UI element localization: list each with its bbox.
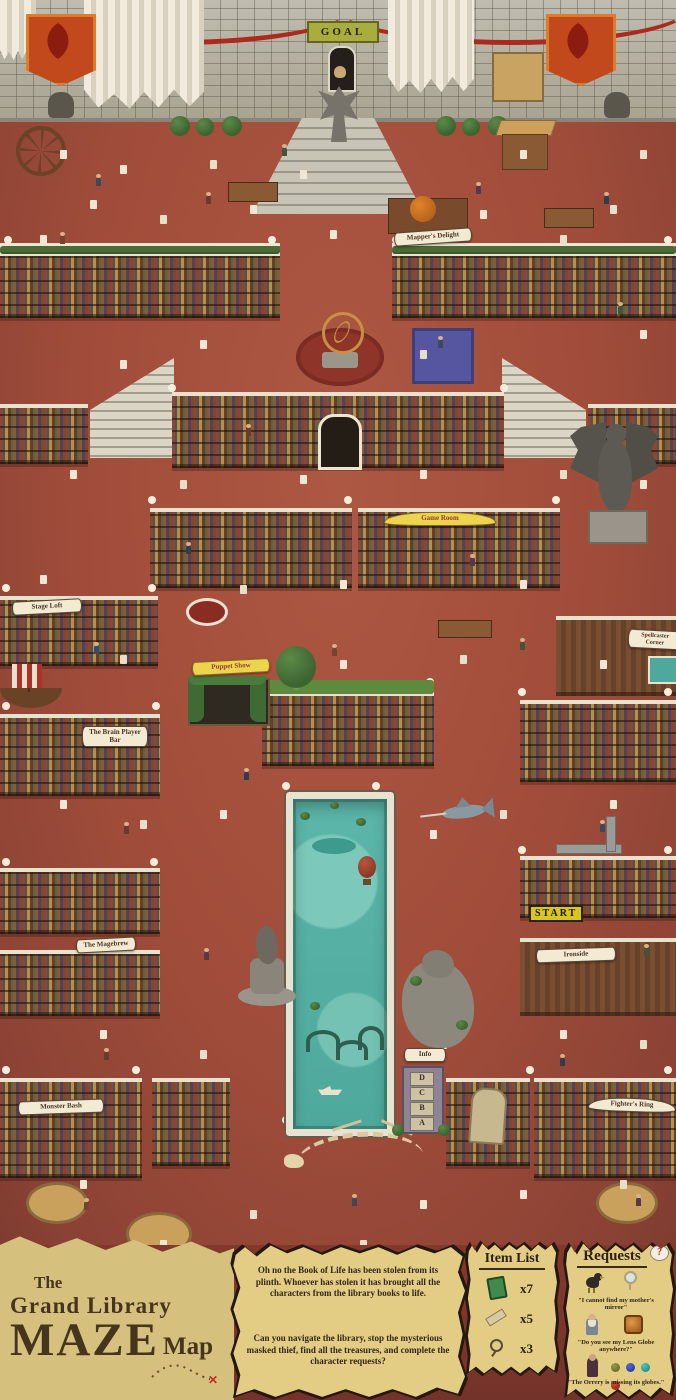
topiary bbox=[462, 118, 480, 136]
bookshelf-row bbox=[0, 950, 160, 1016]
map-area: GOAL Mapper's Delight bbox=[0, 0, 676, 1245]
requests-title: Requests bbox=[577, 1248, 647, 1268]
topiary bbox=[392, 1124, 404, 1136]
magnifying-glass-icon bbox=[490, 1339, 504, 1355]
stairs-left bbox=[90, 358, 174, 458]
story-paragraph-1: Oh no the Book of Life has been stolen f… bbox=[246, 1265, 450, 1300]
garden-tree bbox=[276, 646, 316, 688]
phoenix-emblem bbox=[47, 23, 68, 59]
bookshelf-row bbox=[392, 252, 676, 318]
requests-header: Requests bbox=[562, 1247, 662, 1268]
market-stall bbox=[502, 134, 548, 170]
lily-pad bbox=[310, 1002, 320, 1010]
reading-table bbox=[544, 208, 594, 228]
item-list-header: Item List bbox=[464, 1249, 560, 1270]
hand-mirror-icon bbox=[624, 1271, 636, 1289]
lily-pad bbox=[330, 802, 339, 809]
puppet-show-stage: Puppet Show bbox=[186, 660, 268, 722]
sarcophagus bbox=[468, 1087, 508, 1145]
green-book-icon bbox=[486, 1276, 508, 1301]
start-sign: START bbox=[529, 905, 583, 922]
bookshelf-row bbox=[0, 868, 160, 934]
garland bbox=[392, 246, 676, 252]
blue-rug bbox=[412, 328, 474, 384]
item-count: x3 bbox=[520, 1341, 533, 1357]
info-sign: Info bbox=[404, 1048, 446, 1062]
owl-icon bbox=[334, 66, 346, 78]
info-board-tile: D bbox=[410, 1072, 434, 1086]
teal-globe-icon bbox=[641, 1363, 650, 1372]
item-count: x7 bbox=[520, 1281, 533, 1297]
swordfish bbox=[419, 793, 498, 830]
topiary bbox=[222, 116, 242, 136]
request-quote: "Do you see my Lens Globe anywhere?" bbox=[566, 1339, 666, 1354]
topiary bbox=[436, 116, 456, 136]
sign-puppet-show: Puppet Show bbox=[192, 658, 271, 676]
reading-table bbox=[438, 620, 492, 638]
info-board-tile: A bbox=[410, 1117, 434, 1131]
reading-table bbox=[228, 182, 278, 202]
bookshelf-row bbox=[520, 700, 676, 782]
game-table bbox=[26, 1182, 88, 1224]
bookshelf-row bbox=[262, 692, 434, 766]
title-the: The bbox=[34, 1273, 225, 1293]
dotted-trail: ✕ bbox=[150, 1353, 220, 1387]
bookshelf-row bbox=[150, 508, 352, 588]
bookshelf-row bbox=[152, 1078, 230, 1166]
blue-globe-icon bbox=[626, 1363, 635, 1372]
game-table bbox=[596, 1182, 658, 1224]
sign-spellcaster-corner: Spellcaster Corner bbox=[628, 629, 676, 651]
goal-sign: GOAL bbox=[307, 21, 379, 43]
requests-card: Requests ? "I cannot find my mother's mi… bbox=[562, 1239, 676, 1400]
request-quote: "The Orrery is missing its globes." bbox=[566, 1379, 666, 1386]
garland bbox=[0, 246, 280, 252]
bookshelf-row bbox=[0, 252, 280, 318]
sign-brain-player-bar: The Brain Player Bar bbox=[82, 726, 148, 747]
question-bubble: ? bbox=[650, 1245, 669, 1261]
info-board-tile: B bbox=[410, 1102, 434, 1116]
olive-globe-icon bbox=[611, 1363, 620, 1372]
lens-globe-icon bbox=[624, 1315, 643, 1334]
map-title: The Grand Library MAZE Map bbox=[10, 1273, 225, 1361]
orrery-base bbox=[322, 352, 358, 368]
x-marks-spot-icon: ✕ bbox=[208, 1373, 218, 1387]
phoenix-emblem bbox=[567, 23, 588, 59]
eagle-statue-right bbox=[604, 92, 630, 118]
viking-ship bbox=[0, 662, 64, 712]
bookshelf-row bbox=[0, 404, 88, 464]
story-scroll: Oh no the Book of Life has been stolen f… bbox=[228, 1241, 468, 1400]
bookshelf-row bbox=[534, 1078, 676, 1178]
info-board-tile: C bbox=[410, 1087, 434, 1101]
wizard-character bbox=[584, 1313, 600, 1335]
gold-banner bbox=[492, 52, 544, 102]
arched-doorway bbox=[318, 414, 362, 470]
story-paragraph-2: Can you navigate the library, stop the m… bbox=[246, 1333, 450, 1368]
topiary bbox=[170, 116, 190, 136]
hot-air-balloon bbox=[358, 856, 376, 885]
eagle-statue-left bbox=[48, 92, 74, 118]
bookshelf-row bbox=[0, 1078, 142, 1178]
dragon-skeleton bbox=[284, 1124, 436, 1194]
ship-wheel-icon bbox=[16, 126, 66, 176]
item-count: x5 bbox=[520, 1311, 533, 1327]
sea-serpent-head bbox=[358, 1026, 384, 1050]
item-list-card: Item List x7 x5 x3 bbox=[464, 1239, 560, 1379]
grand-library-maze-map: GOAL Mapper's Delight bbox=[0, 0, 676, 1400]
lamp-globes bbox=[0, 0, 8, 8]
sign-game-room: Game Room bbox=[384, 512, 496, 526]
sea-serpent-coil bbox=[306, 1030, 340, 1052]
aquarium bbox=[648, 656, 676, 684]
footer-panel: The Grand Library MAZE Map ✕ Oh no the B… bbox=[0, 1245, 676, 1400]
sign-ironside: Ironside bbox=[536, 947, 616, 963]
title-maze: MAZE bbox=[10, 1319, 159, 1361]
whale-shadow bbox=[312, 838, 356, 854]
topiary bbox=[196, 118, 214, 136]
request-quote: "I cannot find my mother's mirror" bbox=[566, 1297, 666, 1312]
lily-pad bbox=[300, 812, 310, 820]
globe-icon bbox=[410, 196, 436, 222]
orrery-globes-icons bbox=[610, 1359, 664, 1395]
topiary bbox=[438, 1124, 450, 1136]
gargoyle-statue bbox=[570, 414, 658, 546]
lily-pad bbox=[356, 818, 366, 826]
item-list-title: Item List bbox=[479, 1251, 546, 1270]
hooded-character bbox=[586, 1353, 600, 1377]
raven-character bbox=[584, 1273, 602, 1293]
pipe bbox=[606, 816, 616, 852]
game-table bbox=[186, 598, 228, 626]
